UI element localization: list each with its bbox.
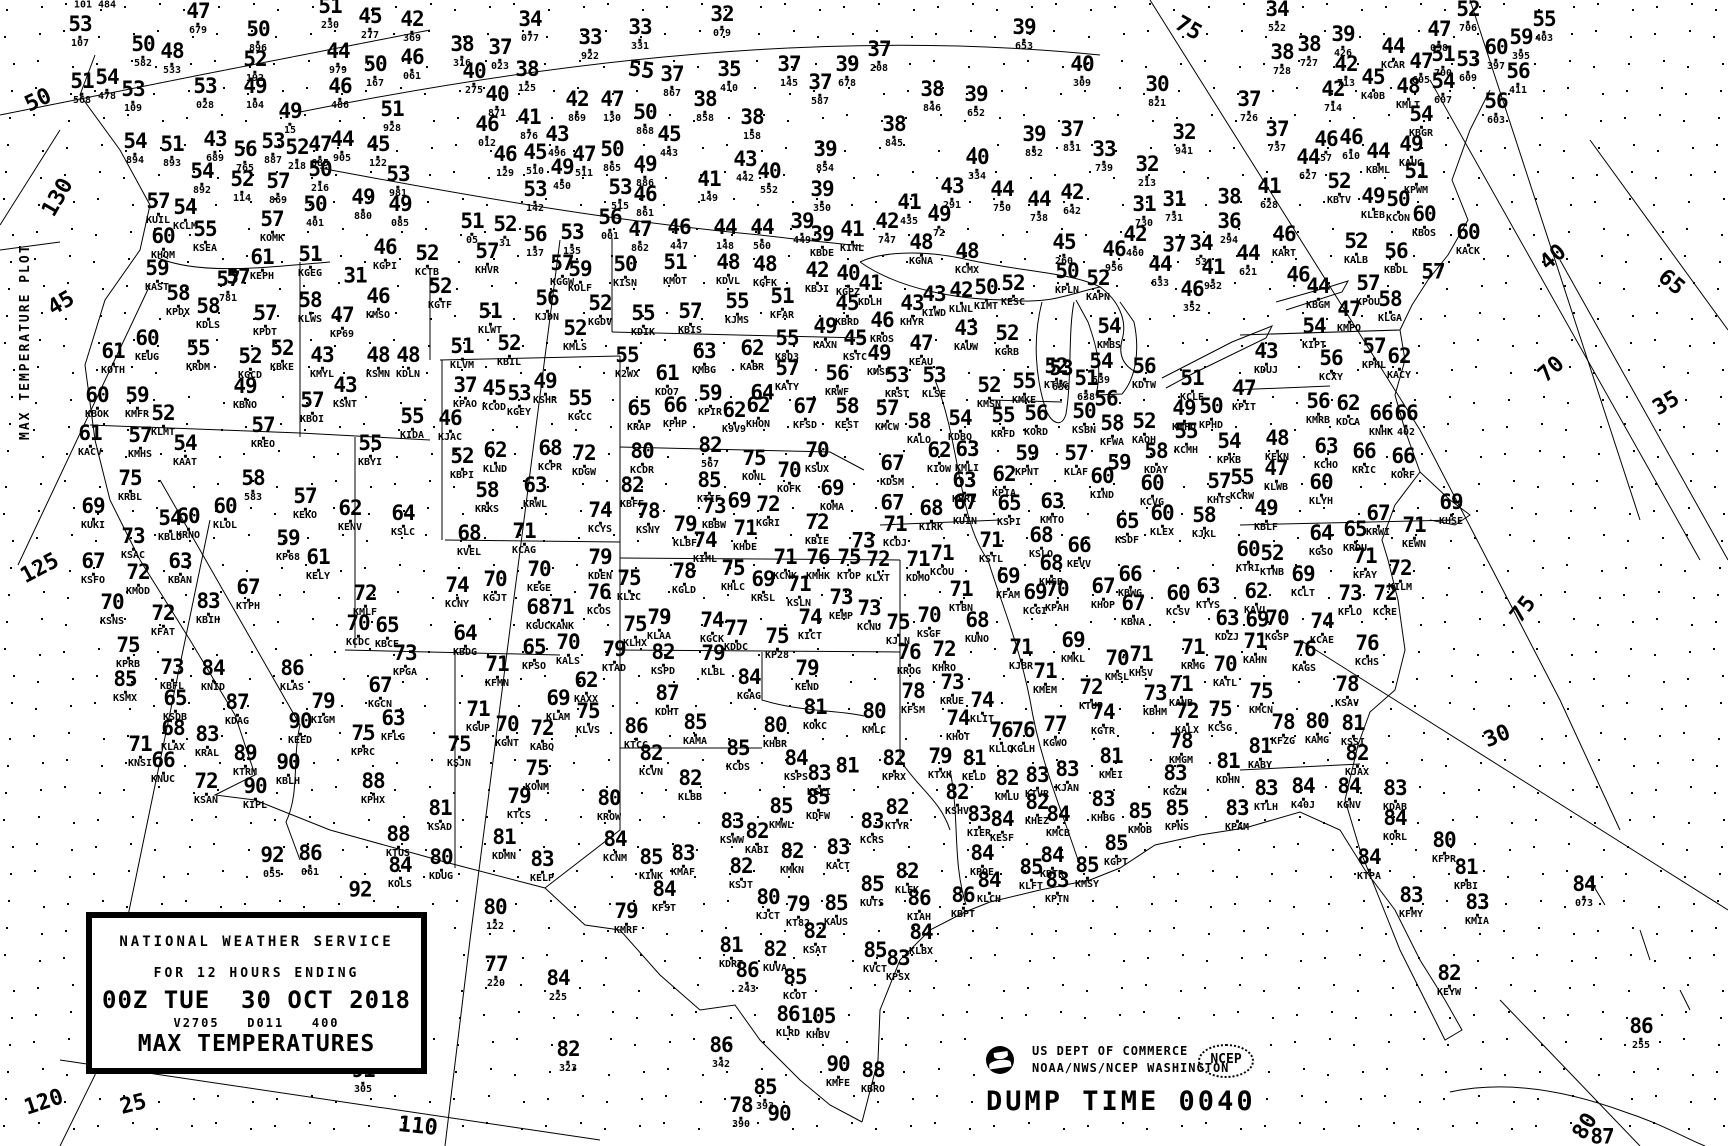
station-plot: 87KDAG bbox=[225, 692, 249, 727]
station-temp: 70 bbox=[1265, 608, 1289, 629]
station-id: KSUX bbox=[805, 465, 829, 475]
station-plot: 82KCVN bbox=[639, 743, 663, 778]
station-plot: 72KFAT bbox=[151, 603, 175, 638]
station-plot: 74KLIT bbox=[970, 690, 994, 725]
station-plot: 82323 bbox=[556, 1039, 579, 1074]
station-temp: 41 bbox=[1201, 257, 1224, 278]
station-plot: 62KLND bbox=[483, 440, 507, 475]
station-id: KGEG bbox=[298, 269, 322, 279]
station-temp: 76 bbox=[587, 582, 611, 603]
station-plot: 83KELP bbox=[530, 849, 554, 884]
station-plot: 31 bbox=[343, 265, 366, 286]
station-plot: 44979 bbox=[326, 41, 349, 76]
station-id: 130 bbox=[600, 114, 623, 124]
station-id: KIRK bbox=[919, 523, 943, 533]
station-plot: 43496 bbox=[545, 124, 568, 159]
station-temp: 92 bbox=[260, 845, 283, 866]
station-temp: 47 bbox=[1232, 378, 1256, 399]
station-temp: 75 bbox=[351, 723, 375, 744]
station-plot: 43KAUW bbox=[954, 318, 978, 353]
station-id: 023 bbox=[488, 62, 511, 72]
station-id: KLBL bbox=[701, 668, 725, 678]
station-plot: 72KABQ bbox=[530, 718, 554, 753]
station-temp: 83 bbox=[967, 804, 991, 825]
station-temp: 58 bbox=[241, 468, 264, 489]
station-plot: 35410 bbox=[717, 59, 740, 94]
station-plot: 90KMFE bbox=[826, 1054, 850, 1089]
station-id: 230 bbox=[318, 21, 341, 31]
station-temp: 75 bbox=[886, 612, 910, 633]
station-temp: 78 bbox=[672, 561, 696, 582]
station-id: 533 bbox=[160, 66, 183, 76]
station-id: KTYR bbox=[885, 822, 909, 832]
station-plot: 42642 bbox=[1060, 182, 1083, 217]
station-temp: 92 bbox=[348, 879, 371, 900]
station-id: KBLH bbox=[276, 777, 300, 787]
station-temp: 73 bbox=[121, 526, 145, 547]
legend-product-title: MAX TEMPERATURES bbox=[92, 1031, 421, 1057]
station-plot: 60KLOL bbox=[213, 496, 237, 531]
station-temp: 45 bbox=[1361, 67, 1385, 88]
station-id: KDUG bbox=[429, 872, 453, 882]
station-plot: 88KBRO bbox=[861, 1060, 885, 1095]
station-temp: 79 bbox=[311, 691, 335, 712]
station-plot: 61KELY bbox=[306, 547, 330, 582]
station-plot: 73KCNU bbox=[857, 598, 881, 633]
station-plot: 85KCOT bbox=[783, 967, 807, 1002]
station-temp: 37 bbox=[808, 72, 831, 93]
station-temp: 84 bbox=[201, 658, 225, 679]
station-temp: 81 bbox=[803, 697, 827, 718]
station-id: KMCN bbox=[1249, 706, 1273, 716]
station-temp: 85 bbox=[783, 967, 807, 988]
station-plot: 55KRFD bbox=[991, 405, 1015, 440]
station-id: KCMH bbox=[1174, 446, 1198, 456]
station-plot: 80KFPR bbox=[1432, 830, 1456, 865]
station-temp: 83 bbox=[196, 591, 220, 612]
station-id: KSAN bbox=[194, 796, 218, 806]
station-id: KMPO bbox=[1337, 324, 1361, 334]
station-id: KISN bbox=[613, 279, 637, 289]
station-plot: 75KCSG bbox=[1208, 699, 1232, 734]
station-id: KFZG bbox=[1271, 737, 1295, 747]
station-temp: 79 bbox=[928, 746, 952, 767]
station-id: KLND bbox=[483, 465, 507, 475]
station-temp: 47 bbox=[909, 333, 933, 354]
station-id: KLSE bbox=[922, 390, 946, 400]
station-id: KSDF bbox=[1115, 536, 1139, 546]
station-plot: 39653 bbox=[1012, 17, 1035, 52]
station-plot: 101 484 bbox=[74, 1, 116, 11]
station-plot: 52KBKE bbox=[270, 338, 294, 373]
station-temp: 60 bbox=[1484, 37, 1507, 58]
station-plot: 89KTRM bbox=[233, 743, 257, 778]
station-temp: 50 bbox=[131, 34, 154, 55]
station-plot: 83KIER bbox=[967, 804, 991, 839]
station-plot: 62KHON bbox=[746, 395, 770, 430]
station-plot: 54KPKB bbox=[1217, 431, 1241, 466]
station-temp: 80 bbox=[756, 887, 780, 908]
station-id: KBAN bbox=[168, 576, 192, 586]
station-plot: 85KMWL bbox=[769, 796, 793, 831]
station-plot: 92 bbox=[348, 879, 371, 900]
station-plot: 71KGUP bbox=[466, 699, 490, 734]
station-id: KORD bbox=[1024, 428, 1048, 438]
station-plot: 84073 bbox=[1572, 874, 1595, 909]
station-plot: 47KMPO bbox=[1337, 299, 1361, 334]
station-plot: 48KGNA bbox=[909, 232, 933, 267]
station-id: KTRI bbox=[1236, 564, 1260, 574]
station-plot: 82KJAX bbox=[1345, 743, 1369, 778]
station-temp: 52 bbox=[1344, 231, 1368, 252]
station-plot: 81KDHN bbox=[1216, 751, 1240, 786]
station-id: 887 bbox=[261, 156, 284, 166]
station-temp: 45 bbox=[366, 134, 389, 155]
station-id: KGJT bbox=[483, 594, 507, 604]
station-plot: 85KVCT bbox=[863, 940, 887, 975]
station-temp: 52 bbox=[493, 214, 516, 235]
station-id: KBPT bbox=[951, 910, 975, 920]
station-temp: 34 bbox=[1265, 0, 1288, 20]
station-temp: 67 bbox=[81, 551, 105, 572]
station-id: KDLS bbox=[196, 321, 220, 331]
station-plot: 46KGPI bbox=[373, 237, 397, 272]
station-temp: 54 bbox=[173, 433, 197, 454]
station-plot: 47679 bbox=[186, 1, 209, 36]
station-id: KPIR bbox=[698, 408, 722, 418]
station-plot: 31730 bbox=[1132, 194, 1155, 229]
station-temp: 52 bbox=[1086, 268, 1110, 289]
station-temp: 34 bbox=[1189, 233, 1212, 254]
station-id: KGWO bbox=[1043, 739, 1067, 749]
station-plot: 85KGPT bbox=[1104, 833, 1128, 868]
station-plot: 60KEUG bbox=[135, 328, 159, 363]
station-temp: 84 bbox=[970, 843, 994, 864]
station-id: KMEM bbox=[1033, 686, 1057, 696]
station-temp: 71 bbox=[1181, 637, 1205, 658]
station-plot: 67KSFO bbox=[81, 551, 105, 586]
station-plot: 66KRIC bbox=[1352, 441, 1376, 476]
station-id: KLAF bbox=[1064, 468, 1088, 478]
station-temp: 71 bbox=[1169, 674, 1193, 695]
station-id: KCDS bbox=[726, 763, 750, 773]
station-plot: 60KIND bbox=[1090, 466, 1114, 501]
station-temp: 85 bbox=[1128, 801, 1152, 822]
station-id: 435 bbox=[897, 217, 920, 227]
station-id: KEMP bbox=[829, 612, 853, 622]
station-plot: 53KRST bbox=[885, 365, 909, 400]
station-temp: 58 bbox=[835, 396, 859, 417]
station-id: 628 bbox=[1257, 201, 1280, 211]
station-plot: 32213 bbox=[1135, 154, 1158, 189]
station-id: KBHM bbox=[1143, 708, 1167, 718]
station-plot: 70KSNS bbox=[100, 592, 124, 627]
station-plot: 56603 bbox=[1484, 91, 1507, 126]
station-temp: 44 bbox=[1236, 243, 1259, 264]
station-plot: 46KART bbox=[1272, 224, 1296, 259]
station-id: KBJI bbox=[805, 285, 829, 295]
station-id: KRIC bbox=[1352, 466, 1376, 476]
station-id: 213 bbox=[1135, 179, 1158, 189]
station-temp: 71 bbox=[1243, 631, 1267, 652]
station-id: KMLU bbox=[995, 793, 1019, 803]
station-id: KCRW bbox=[1230, 492, 1254, 502]
station-temp: 73 bbox=[857, 598, 881, 619]
station-id: 142 bbox=[523, 204, 546, 214]
station-id: 869 bbox=[565, 114, 588, 124]
station-temp: 56 bbox=[233, 139, 256, 160]
station-plot: 74KICT bbox=[798, 607, 822, 642]
station-plot: 84KOLS bbox=[388, 855, 412, 890]
station-id: 730 bbox=[1132, 219, 1155, 229]
station-plot: 56KDTW bbox=[1132, 356, 1156, 391]
station-temp: 38 bbox=[1270, 42, 1293, 63]
station-temp: 69 bbox=[820, 478, 844, 499]
station-id: KLEX bbox=[1150, 528, 1174, 538]
station-plot: 49KBNO bbox=[233, 376, 257, 411]
station-plot: 67KBNA bbox=[1121, 593, 1145, 628]
station-plot: 73KBBW bbox=[702, 496, 726, 531]
station-temp: 67 bbox=[953, 492, 977, 513]
station-id: KSNY bbox=[636, 526, 660, 536]
station-temp: 70 bbox=[1213, 654, 1237, 675]
station-plot: 86255 bbox=[1629, 1016, 1652, 1051]
station-id: 158 bbox=[740, 132, 763, 142]
station-temp: 51 bbox=[460, 211, 483, 232]
station-plot: 74KHOT bbox=[946, 708, 970, 743]
station-temp: 57 bbox=[775, 358, 799, 379]
station-plot: 63KDZJ bbox=[1215, 608, 1239, 643]
station-plot: 72KBIE bbox=[805, 512, 829, 547]
station-temp: 85 bbox=[113, 669, 137, 690]
station-plot: 52218 bbox=[285, 137, 308, 172]
station-temp: 84 bbox=[652, 879, 676, 900]
station-plot: 60KCSV bbox=[1166, 583, 1190, 618]
station-temp: 43 bbox=[733, 149, 756, 170]
station-id: KLRD bbox=[776, 1029, 800, 1039]
station-temp: 63 bbox=[1196, 576, 1220, 597]
station-temp: 53 bbox=[68, 14, 91, 35]
station-id: 858 bbox=[693, 114, 716, 124]
station-id: KMSY bbox=[1075, 880, 1099, 890]
station-plot: 79KDEN bbox=[588, 547, 612, 582]
noaa-seagull-icon bbox=[986, 1046, 1014, 1074]
station-temp: 79 bbox=[701, 643, 725, 664]
station-plot: 45K40B bbox=[1361, 67, 1385, 102]
station-temp: 59 bbox=[276, 528, 300, 549]
station-id: KSNT bbox=[333, 400, 357, 410]
station-temp: 52 bbox=[995, 323, 1019, 344]
station-id: KEYW bbox=[1437, 988, 1461, 998]
station-id: 678 bbox=[835, 79, 858, 89]
station-temp: 53 bbox=[560, 222, 583, 243]
station-plot: 84KLCH bbox=[977, 870, 1001, 905]
station-id: KVEL bbox=[457, 548, 481, 558]
station-temp: 45 bbox=[523, 142, 546, 163]
station-plot: 46KJAC bbox=[438, 408, 462, 443]
station-temp: 63 bbox=[952, 470, 976, 491]
station-plot: 71KCDJ bbox=[883, 514, 907, 549]
station-id: 510 bbox=[523, 167, 546, 177]
station-temp: 55 bbox=[615, 345, 639, 366]
station-temp: 84 bbox=[388, 855, 412, 876]
station-id: 073 bbox=[1572, 899, 1595, 909]
station-temp: 47 bbox=[600, 89, 623, 110]
station-plot: 72KLXT bbox=[866, 549, 890, 584]
station-id: KIML bbox=[693, 555, 717, 565]
station-plot: 60KACK bbox=[1456, 222, 1480, 257]
station-temp: 88 bbox=[361, 771, 385, 792]
station-plot: 42869 bbox=[565, 89, 588, 124]
station-temp: 39 bbox=[810, 179, 833, 200]
station-id: KLAS bbox=[280, 683, 304, 693]
station-temp: 45 bbox=[835, 293, 859, 314]
station-id: KMYL bbox=[310, 370, 334, 380]
station-temp: 56 bbox=[523, 224, 546, 245]
station-plot: 76KLLQ bbox=[989, 720, 1013, 755]
station-temp: 79 bbox=[647, 607, 671, 628]
station-id: KPGA bbox=[393, 668, 417, 678]
graticule-label: 110 bbox=[397, 1112, 439, 1141]
station-id: KBDG bbox=[453, 648, 477, 658]
station-temp: 42 bbox=[400, 9, 423, 30]
station-temp: 68 bbox=[919, 498, 943, 519]
station-plot: 80KHBR bbox=[763, 715, 787, 750]
station-id: K40J bbox=[1291, 801, 1315, 811]
station-id: KPAH bbox=[1045, 604, 1069, 614]
station-plot: 63KMBG bbox=[692, 341, 716, 376]
station-plot: 57781 bbox=[216, 269, 239, 304]
station-plot: 66KEVV bbox=[1067, 535, 1091, 570]
station-temp: 74 bbox=[700, 610, 724, 631]
station-temp: 47 bbox=[1264, 458, 1288, 479]
station-temp: 72 bbox=[756, 494, 780, 515]
station-temp: 52 bbox=[1327, 171, 1351, 192]
station-temp: 87 bbox=[655, 683, 679, 704]
station-plot: 83KFMY bbox=[1399, 885, 1423, 920]
station-id: KLYH bbox=[1309, 497, 1333, 507]
station-temp: 54 bbox=[1217, 431, 1241, 452]
station-temp: 61 bbox=[250, 247, 274, 268]
station-temp: 49 bbox=[550, 157, 573, 178]
side-axis-title: MAX TEMPERATURE PLOT bbox=[18, 300, 54, 600]
station-id: 893 bbox=[160, 159, 183, 169]
station-temp: 84 bbox=[784, 748, 808, 769]
station-id: 728 bbox=[1270, 67, 1293, 77]
station-temp: 62 bbox=[722, 400, 746, 421]
station-temp: 39 bbox=[1022, 124, 1045, 145]
station-temp: 86 bbox=[907, 888, 931, 909]
station-plot: 42714 bbox=[1321, 79, 1344, 114]
station-plot: 43KDUJ bbox=[1254, 341, 1278, 376]
station-plot: 57KMCW bbox=[875, 398, 899, 433]
station-plot: 81 bbox=[835, 755, 858, 776]
station-id: KLXT bbox=[866, 574, 890, 584]
station-id: 582 bbox=[131, 59, 154, 69]
station-plot: 38846 bbox=[920, 79, 943, 114]
station-plot: 90 bbox=[767, 1103, 790, 1124]
station-temp: 57 bbox=[1207, 471, 1231, 492]
station-temp: 72 bbox=[1373, 583, 1397, 604]
station-temp: 105 bbox=[801, 1006, 836, 1027]
station-id: KBGM bbox=[1306, 301, 1330, 311]
station-plot: 46KROS bbox=[870, 310, 894, 345]
station-plot: 81KDMN bbox=[492, 827, 516, 862]
station-id: 402 bbox=[1394, 428, 1417, 438]
station-id: KCRS bbox=[860, 836, 884, 846]
station-plot: 71KCAG bbox=[512, 521, 536, 556]
station-id: KDZJ bbox=[1215, 633, 1239, 643]
meridian65 bbox=[1590, 140, 1728, 330]
station-temp: 50 bbox=[303, 194, 326, 215]
station-temp: 71 bbox=[485, 654, 509, 675]
station-temp: 86 bbox=[298, 843, 321, 864]
station-temp: 73 bbox=[940, 672, 964, 693]
station-plot: 63KFLG bbox=[381, 708, 405, 743]
station-plot: 69 bbox=[727, 490, 750, 511]
station-id: 460 bbox=[1123, 249, 1146, 259]
station-temp: 62 bbox=[740, 338, 764, 359]
station-plot: 50KISN bbox=[613, 254, 637, 289]
station-plot: 50KPLN bbox=[1055, 261, 1079, 296]
station-temp: 86 bbox=[1629, 1016, 1652, 1037]
station-id: 129 bbox=[493, 169, 516, 179]
station-plot: 38 bbox=[1217, 186, 1240, 207]
station-id: 401 bbox=[303, 219, 326, 229]
station-id: KRNO bbox=[176, 531, 200, 541]
station-plot: 83KJAN bbox=[1055, 759, 1079, 794]
station-plot: 66KNUC bbox=[151, 750, 175, 785]
station-plot: 55KSEA bbox=[193, 219, 217, 254]
station-temp: 43 bbox=[1254, 341, 1278, 362]
station-id: KELP bbox=[530, 874, 554, 884]
station-temp: 30 bbox=[1145, 74, 1168, 95]
station-id: 905 bbox=[330, 154, 353, 164]
station-temp: 68 bbox=[161, 718, 185, 739]
station-temp: 82 bbox=[556, 1039, 579, 1060]
station-temp: 42 bbox=[1321, 79, 1344, 100]
station-temp: 75 bbox=[617, 568, 641, 589]
station-plot: 55403 bbox=[1532, 9, 1555, 44]
station-temp: 86 bbox=[776, 1004, 800, 1025]
station-temp: 79 bbox=[614, 901, 638, 922]
station-plot: 37726 bbox=[1237, 89, 1260, 124]
station-id: KROG bbox=[897, 667, 921, 677]
station-plot: 33922 bbox=[578, 27, 601, 62]
station-id: KIWD bbox=[922, 309, 946, 319]
station-id: KCTB bbox=[415, 268, 439, 278]
station-id: KAHN bbox=[1243, 656, 1267, 666]
station-temp: 65 bbox=[627, 398, 651, 419]
station-temp: 63 bbox=[692, 341, 716, 362]
station-id: 443 bbox=[657, 149, 680, 159]
station-temp: 84 bbox=[1040, 845, 1064, 866]
station-temp: 68 bbox=[457, 523, 481, 544]
station-temp: 59 bbox=[568, 259, 592, 280]
station-id: KGRB bbox=[995, 348, 1019, 358]
station-id: KCNU bbox=[857, 623, 881, 633]
station-id: KIOW bbox=[927, 465, 951, 475]
station-temp: 86 bbox=[624, 716, 648, 737]
station-temp: 53 bbox=[608, 177, 631, 198]
station-id: KMEI bbox=[1099, 771, 1123, 781]
station-temp: 75 bbox=[576, 701, 600, 722]
station-temp: 89 bbox=[233, 743, 257, 764]
station-temp: 42 bbox=[805, 260, 829, 281]
station-plot: 74KCNY bbox=[445, 575, 469, 610]
station-id: KDSM bbox=[880, 478, 904, 488]
station-temp: 84 bbox=[1572, 874, 1595, 895]
